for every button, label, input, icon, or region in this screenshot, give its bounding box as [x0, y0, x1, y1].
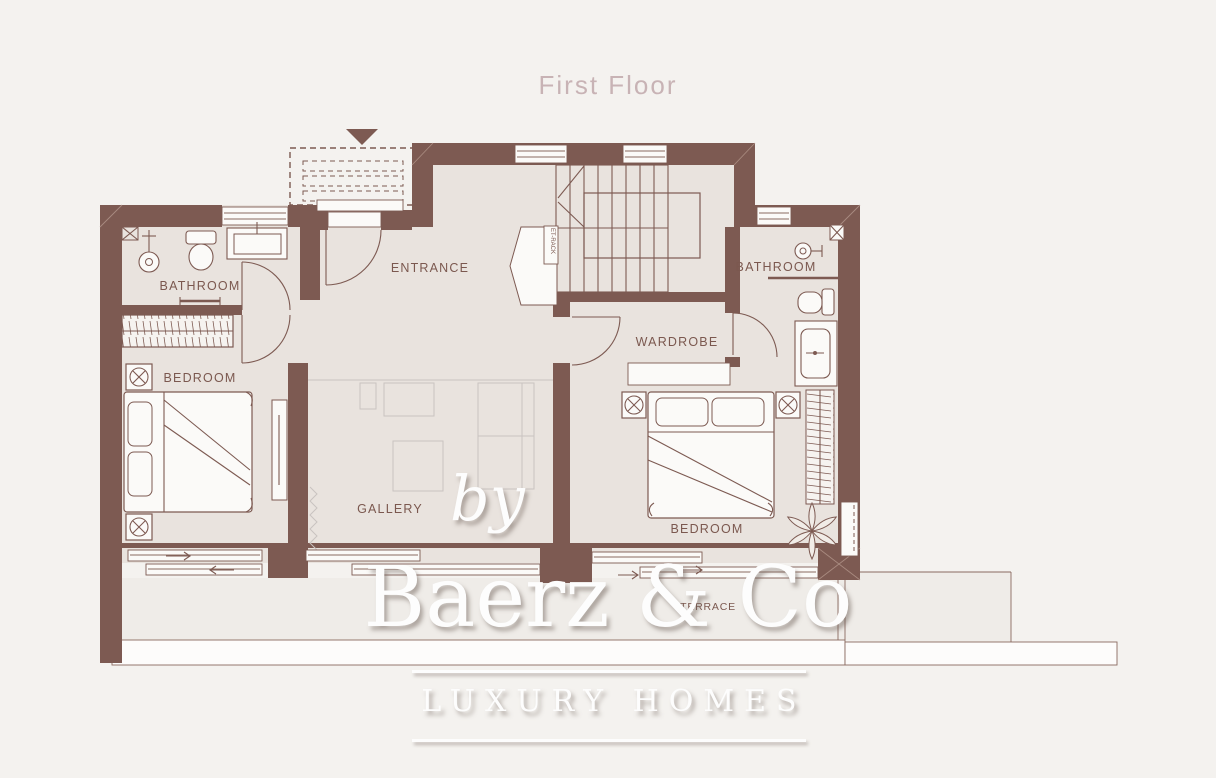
window — [222, 207, 288, 225]
sink-vanity-icon — [227, 222, 287, 259]
double-bed-icon — [124, 392, 252, 512]
label-bathroom-right: BATHROOM — [736, 260, 817, 274]
toilet-icon — [186, 231, 216, 270]
label-bathroom-left: BATHROOM — [160, 279, 241, 293]
floor-plan-drawing — [0, 0, 1216, 778]
label-entrance: ENTRANCE — [391, 261, 469, 275]
floorplan-page: First Floor BATHROOM BEDROOM ENTRANCE WA… — [0, 0, 1216, 778]
entrance-marker-icon — [346, 129, 378, 145]
skylight-window — [623, 145, 667, 163]
nightstand-lamp-icon — [126, 364, 152, 390]
nightstand-lamp-icon — [126, 514, 152, 540]
watermark-divider — [412, 739, 806, 742]
watermark-by: by — [450, 462, 525, 535]
label-gallery: GALLERY — [357, 502, 423, 516]
page-title: First Floor — [539, 70, 678, 101]
label-wardrobe: WARDROBE — [636, 335, 719, 349]
vent-icon — [830, 225, 844, 240]
shower-tray-icon — [795, 321, 837, 386]
wardrobe-shelf — [628, 363, 730, 385]
nightstand-lamp-icon — [776, 392, 800, 418]
wardrobe-hatch-icon — [806, 390, 834, 504]
skylight-window — [515, 145, 567, 163]
tv-panel-icon — [272, 400, 287, 500]
window — [757, 207, 791, 225]
label-bedroom-left: BEDROOM — [164, 371, 237, 385]
toilet-icon — [798, 289, 834, 315]
label-et-rack: ET-RACK — [545, 228, 558, 266]
nightstand-lamp-icon — [622, 392, 646, 418]
double-bed-icon — [648, 392, 774, 518]
watermark-tagline: LUXURY HOMES — [421, 684, 806, 719]
watermark-divider — [412, 670, 806, 673]
label-bedroom-right: BEDROOM — [671, 522, 744, 536]
wardrobe-hatch-icon — [122, 315, 233, 347]
watermark-brand: Baerz & Co — [364, 548, 853, 646]
